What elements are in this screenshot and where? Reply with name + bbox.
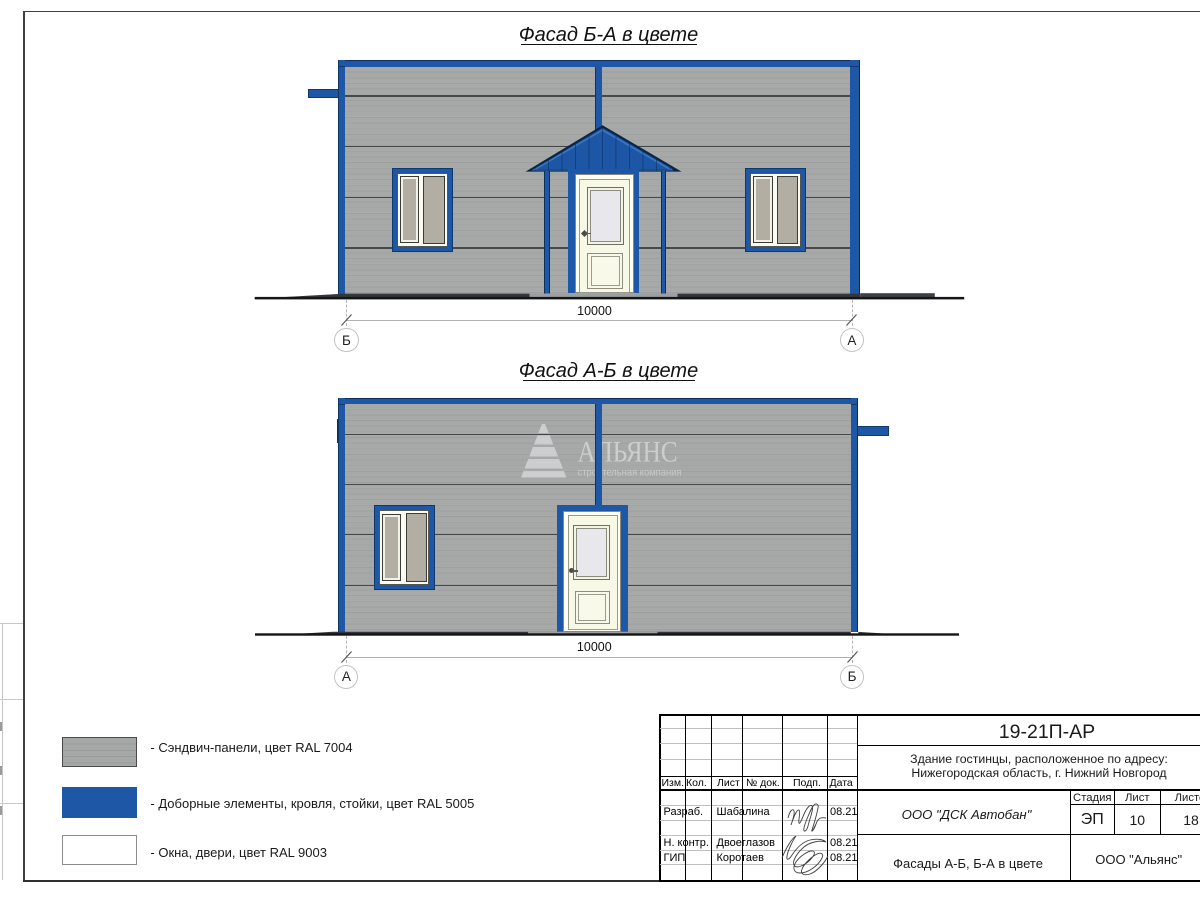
svg-text:строительная компания: строительная компания [578,468,682,479]
svg-text:АЛЬЯНС: АЛЬЯНС [578,436,678,469]
